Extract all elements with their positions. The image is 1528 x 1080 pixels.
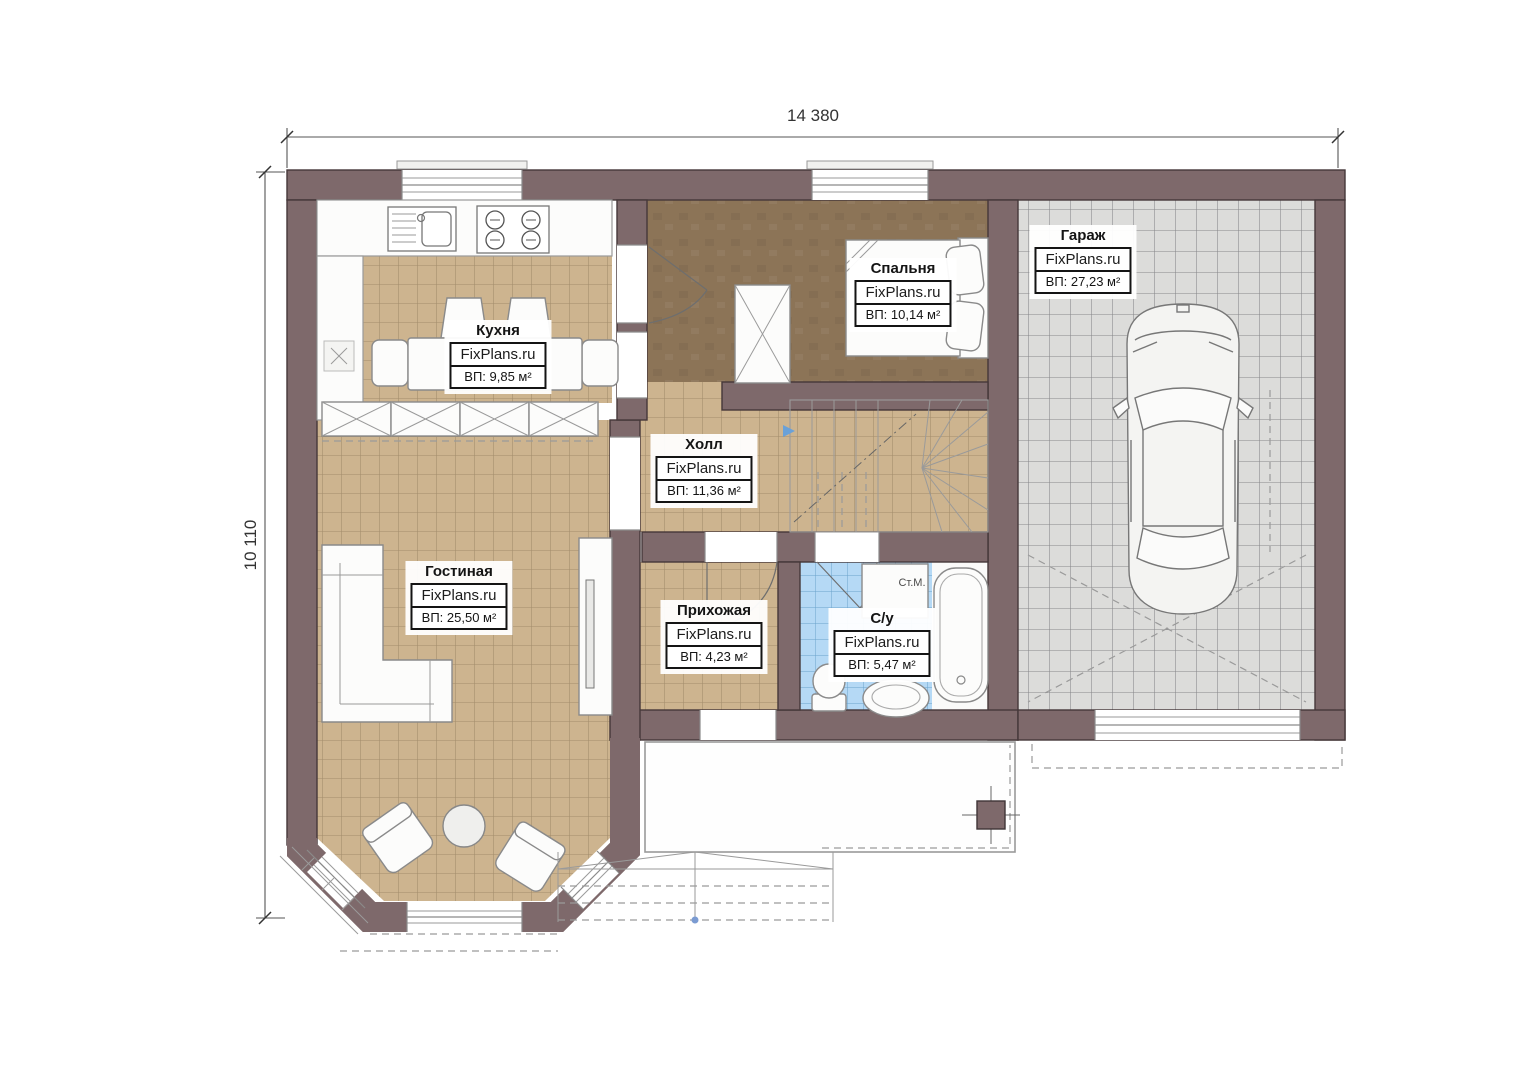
room-label-hall: Холл FixPlans.ru ВП: 11,36 м² [650, 434, 757, 508]
bedroom-window [807, 161, 933, 200]
kitchen-cabinet-row [322, 402, 598, 441]
room-info-box: FixPlans.ru ВП: 4,23 м² [665, 622, 762, 669]
kitchen-window [397, 161, 527, 200]
brand-text: FixPlans.ru [657, 458, 750, 481]
room-info-box: FixPlans.ru ВП: 5,47 м² [833, 630, 930, 677]
kitchen-sink [388, 207, 456, 251]
wardrobe [735, 285, 790, 383]
room-area: ВП: 10,14 м² [856, 305, 949, 325]
room-area: ВП: 11,36 м² [657, 481, 750, 501]
room-info-box: FixPlans.ru ВП: 25,50 м² [410, 583, 507, 630]
room-label-entryway: Прихожая FixPlans.ru ВП: 4,23 м² [660, 600, 767, 674]
room-title: Спальня [854, 260, 951, 278]
brand-text: FixPlans.ru [835, 632, 928, 655]
brand-text: FixPlans.ru [667, 624, 760, 647]
room-info-box: FixPlans.ru ВП: 27,23 м² [1034, 247, 1131, 294]
stove-icon [477, 206, 549, 253]
floor-plan-drawing [0, 0, 1528, 1080]
washing-machine-label: Ст.М. [898, 577, 925, 589]
room-label-living-room: Гостиная FixPlans.ru ВП: 25,50 м² [405, 561, 512, 635]
tv-unit [579, 538, 612, 715]
room-label-kitchen: Кухня FixPlans.ru ВП: 9,85 м² [444, 320, 551, 394]
wash-basin [863, 679, 929, 717]
room-info-box: FixPlans.ru ВП: 10,14 м² [854, 280, 951, 327]
room-label-bedroom: Спальня FixPlans.ru ВП: 10,14 м² [849, 258, 956, 332]
room-label-bathroom: С/у FixPlans.ru ВП: 5,47 м² [828, 608, 935, 682]
porch [645, 742, 1015, 852]
brand-text: FixPlans.ru [412, 585, 505, 608]
room-info-box: FixPlans.ru ВП: 9,85 м² [449, 342, 546, 389]
dimension-width-label: 14 380 [787, 106, 839, 126]
room-title: Холл [655, 436, 752, 454]
room-area: ВП: 27,23 м² [1036, 272, 1129, 292]
brand-text: FixPlans.ru [1036, 249, 1129, 272]
floor-plan-page: 14 380 10 110 Кухня FixPlans.ru ВП: 9,85… [0, 0, 1528, 1080]
dimension-height-label: 10 110 [241, 520, 261, 571]
garage-apron [1032, 744, 1342, 768]
garage-door [1095, 710, 1300, 740]
car [1113, 304, 1253, 614]
room-area: ВП: 25,50 м² [412, 608, 505, 628]
room-info-box: FixPlans.ru ВП: 11,36 м² [655, 456, 752, 503]
bathtub [934, 568, 988, 702]
room-title: Прихожая [665, 602, 762, 620]
room-title: Гараж [1034, 227, 1131, 245]
room-title: С/у [833, 610, 930, 628]
brand-text: FixPlans.ru [856, 282, 949, 305]
room-title: Кухня [449, 322, 546, 340]
room-area: ВП: 5,47 м² [835, 655, 928, 675]
room-title: Гостиная [410, 563, 507, 581]
coffee-table [443, 805, 485, 847]
room-area: ВП: 9,85 м² [451, 367, 544, 387]
room-label-garage: Гараж FixPlans.ru ВП: 27,23 м² [1029, 225, 1136, 299]
room-area: ВП: 4,23 м² [667, 647, 760, 667]
brand-text: FixPlans.ru [451, 344, 544, 367]
